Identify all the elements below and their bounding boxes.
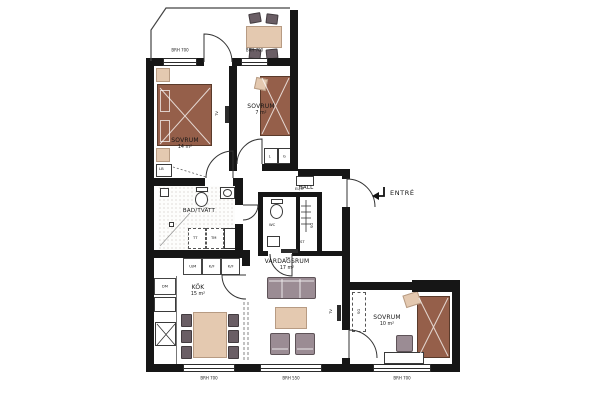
- wall: [232, 58, 241, 66]
- sill-label-top-right: BRH 700: [240, 48, 270, 53]
- dining-table: [193, 312, 227, 358]
- label-electrical: EL/IT: [295, 187, 304, 191]
- dining-chair: [228, 346, 239, 359]
- wardrobe-dashed-line: [173, 167, 206, 177]
- coffee-table: [275, 307, 307, 329]
- bath-toilet-tank: [196, 187, 208, 192]
- kitchen-door: [222, 275, 246, 299]
- wall: [242, 250, 250, 266]
- cabinet-oven-microwave: U/M: [183, 258, 202, 275]
- wc-sink: [267, 236, 280, 247]
- stove: [155, 322, 176, 346]
- room-label-bedroom2: SOVRUM 7 m²: [240, 103, 282, 117]
- bedroom2-area: 7 m²: [244, 110, 278, 116]
- window-top-right: [241, 58, 268, 66]
- room-label-wc: WC: [269, 223, 275, 227]
- wall: [235, 186, 243, 205]
- wall: [197, 58, 204, 66]
- terrace-chair: [265, 13, 278, 24]
- entry-label: ENTRÉ: [390, 189, 415, 197]
- wall: [235, 364, 260, 372]
- window-kitchen: [183, 364, 235, 372]
- wall: [233, 178, 243, 186]
- wall: [258, 192, 322, 197]
- sofa: [267, 277, 316, 299]
- bath-door: [243, 205, 258, 220]
- window-living: [260, 364, 322, 372]
- floor-plan: U/M K/F K/F DM: [0, 0, 600, 400]
- living-area: 17 m²: [267, 265, 307, 271]
- dining-chair: [181, 330, 192, 343]
- bed-bedroom3: [417, 296, 450, 358]
- kitchen-area: 15 m²: [186, 291, 210, 297]
- bedroom2-door: [237, 139, 262, 164]
- shower-mixer: [160, 188, 169, 197]
- sill-label-bedroom3: BRH 700: [387, 376, 416, 381]
- wall: [146, 364, 183, 372]
- wall: [290, 10, 298, 171]
- tv-living-right: [337, 305, 341, 321]
- fridge-freezer-label: K/F: [209, 264, 215, 268]
- dining-chair: [181, 314, 192, 327]
- dining-chair: [228, 314, 239, 327]
- bedroom1-area: 14 m²: [167, 144, 202, 150]
- wall: [154, 178, 205, 186]
- sill-label-top-left: BRH 700: [165, 48, 194, 53]
- nightstand: [156, 68, 170, 82]
- wall: [431, 364, 460, 372]
- bath-sink-basin: [223, 189, 232, 197]
- room-label-bedroom1: SOVRUM 14 m²: [163, 137, 207, 151]
- pillow: [254, 77, 268, 91]
- closet-linen: [264, 148, 278, 164]
- dishwasher: DM: [154, 278, 176, 295]
- wall: [258, 192, 263, 256]
- sill-label-living: BRH 550: [276, 376, 305, 381]
- label-dryer: TT: [193, 236, 197, 240]
- desk: [384, 352, 424, 364]
- dishwasher-label: DM: [162, 284, 168, 288]
- kitchen-name: KÖK: [183, 284, 213, 291]
- label-cleaning-closet: ST: [300, 240, 305, 244]
- counter-edge: [176, 276, 177, 364]
- room-label-bedroom3: SOVRUM 10 m²: [368, 314, 406, 328]
- balcony-door: [204, 34, 232, 62]
- dining-chair: [228, 330, 239, 343]
- entrance-door: [347, 179, 375, 207]
- dining-chair: [181, 346, 192, 359]
- room-label-bath: BAD/TVÄTT: [176, 208, 222, 214]
- window-bedroom3: [373, 364, 431, 372]
- bath-toilet-bowl: [195, 192, 208, 207]
- tv-bedroom1: [225, 106, 229, 123]
- armchair: [270, 333, 290, 355]
- tv-label-bedroom1: TV: [215, 111, 219, 116]
- wall: [317, 192, 322, 256]
- wall: [262, 164, 298, 171]
- entry-arrow-head: [372, 192, 379, 200]
- bedroom3-door: [349, 330, 377, 358]
- wall: [229, 66, 237, 164]
- floor-drain: [169, 222, 174, 227]
- tv-label-living-top: TV: [285, 256, 290, 260]
- armchair: [295, 333, 315, 355]
- tv-living-top: [281, 249, 298, 253]
- wall: [258, 251, 268, 256]
- wall: [342, 207, 350, 330]
- label-sliding-wardrobe-bedroom3: SG: [357, 309, 361, 314]
- fridge-freezer-2-label: K/F: [228, 264, 234, 268]
- wall: [452, 282, 460, 372]
- wall: [146, 58, 154, 372]
- cabinet-fridge-freezer-2: K/F: [221, 258, 240, 275]
- sill-label-kitchen: BRH 700: [194, 376, 223, 381]
- room-label-kitchen: KÖK 15 m²: [183, 284, 213, 298]
- oven-microwave-label: U/M: [189, 264, 196, 268]
- wall: [229, 164, 237, 171]
- terrace-table: [246, 26, 282, 48]
- terrace-chair: [248, 12, 262, 24]
- bedroom3-area: 10 m²: [372, 321, 402, 327]
- bedroom2-name: SOVRUM: [240, 103, 282, 110]
- window-top-left: [163, 58, 197, 66]
- bedroom3-name: SOVRUM: [368, 314, 406, 321]
- label-sliding-wardrobe-hall: SG: [310, 223, 314, 228]
- tv-label-living-right: TV: [329, 309, 333, 314]
- kitchen-counter-unit: [154, 297, 176, 312]
- desk-chair: [396, 335, 413, 352]
- label-washer: TM: [211, 236, 216, 240]
- label-wardrobe-closet: G: [283, 154, 286, 158]
- label-linen-cabinet: LB: [159, 167, 164, 171]
- wall: [154, 250, 243, 258]
- cabinet-fridge-freezer: K/F: [202, 258, 221, 275]
- kitchen-opening-dashed: [244, 302, 248, 362]
- entry-arrow-icon: [378, 187, 384, 196]
- wall: [342, 169, 350, 179]
- wc-toilet-bowl: [270, 204, 283, 219]
- pillow: [160, 90, 170, 112]
- wall: [322, 364, 373, 372]
- bedroom1-name: SOVRUM: [163, 137, 207, 144]
- wall: [322, 251, 350, 256]
- label-linen-closet: L: [269, 154, 271, 158]
